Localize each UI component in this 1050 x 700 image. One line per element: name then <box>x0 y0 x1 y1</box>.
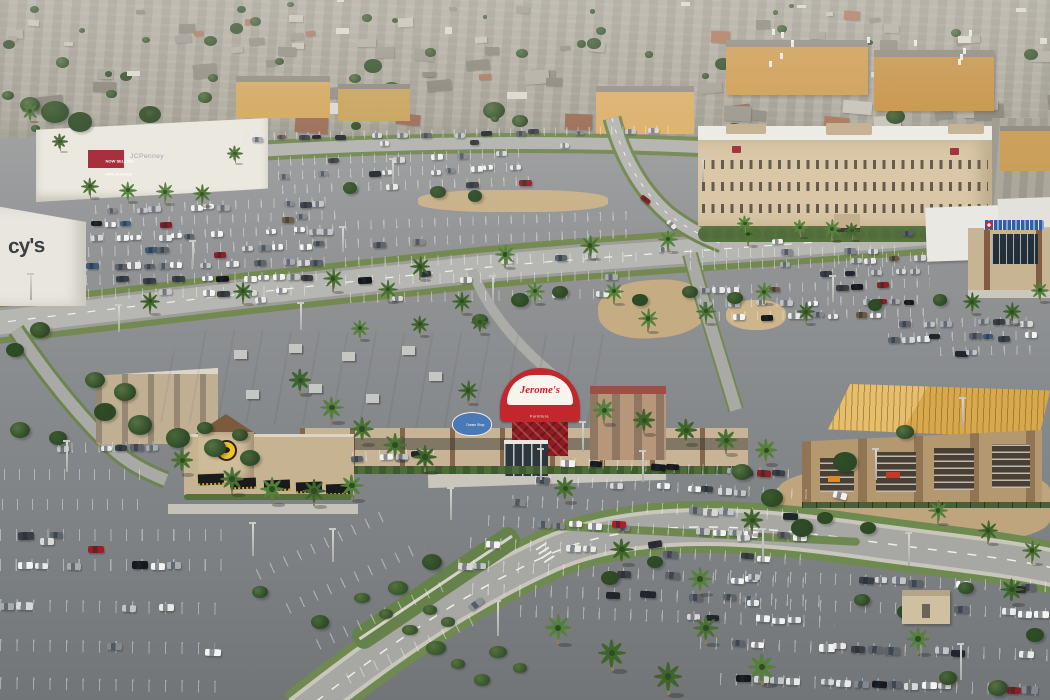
car <box>747 600 759 606</box>
car <box>386 183 398 189</box>
car <box>287 274 300 281</box>
car <box>836 285 849 291</box>
tree <box>817 512 833 525</box>
tree <box>49 431 67 445</box>
car <box>137 207 148 213</box>
car <box>473 563 486 569</box>
car <box>665 572 680 580</box>
palm-tree <box>630 412 658 438</box>
palm-shadow <box>388 301 399 304</box>
palm-shadow <box>332 421 345 425</box>
car <box>258 245 271 252</box>
car <box>940 321 952 327</box>
tree <box>311 615 329 629</box>
palm-shadow <box>1040 301 1050 304</box>
car <box>788 617 801 623</box>
palm-shadow <box>90 197 100 200</box>
palm-shadow <box>762 683 777 687</box>
car <box>899 321 911 327</box>
car <box>889 299 900 305</box>
palm-crown <box>602 408 607 413</box>
car <box>908 580 923 587</box>
palm-shadow <box>1012 323 1022 326</box>
palm-tree <box>337 477 366 504</box>
car <box>783 512 798 520</box>
car <box>120 220 131 226</box>
car <box>380 141 390 146</box>
scene-objects-layer <box>0 0 1050 700</box>
car <box>606 591 620 598</box>
car <box>301 275 313 281</box>
light-pole <box>252 523 254 556</box>
palm-shadow <box>604 423 616 427</box>
car <box>276 288 287 294</box>
car <box>914 255 926 261</box>
car <box>460 277 472 283</box>
light-pole <box>832 276 834 302</box>
car <box>951 650 966 657</box>
palm-shadow <box>918 653 931 657</box>
light-pole-head <box>249 522 256 524</box>
car <box>833 643 846 650</box>
light-pole-head <box>297 302 304 304</box>
car <box>516 131 526 136</box>
car <box>1022 685 1039 694</box>
light-pole <box>875 449 877 480</box>
car <box>88 546 104 553</box>
car <box>284 201 294 206</box>
car <box>117 235 129 241</box>
car <box>300 202 312 208</box>
chimney <box>960 55 963 60</box>
car <box>300 244 312 250</box>
car <box>703 509 718 517</box>
palm-tree <box>693 304 718 327</box>
car <box>1018 611 1032 619</box>
light-pole <box>450 488 452 520</box>
palm-crown <box>311 488 317 494</box>
palm-tree <box>650 666 686 700</box>
light-pole-head <box>27 273 34 275</box>
car <box>40 538 54 545</box>
tree <box>94 403 116 421</box>
car <box>733 313 745 319</box>
shed-door <box>922 604 930 618</box>
car <box>216 290 229 296</box>
car <box>701 486 713 492</box>
palm-crown <box>555 625 561 631</box>
car <box>1018 650 1033 658</box>
car <box>935 647 949 654</box>
palm-crown <box>180 458 185 463</box>
car <box>734 489 746 495</box>
light-pole-head <box>63 440 70 442</box>
aerial-photo: NOW SELLING APPLIANCES! JCPenney cy's <box>0 0 1050 700</box>
palm-tree <box>455 383 482 408</box>
car <box>296 214 307 219</box>
light-pole <box>66 442 68 472</box>
tree <box>240 450 260 466</box>
palm-shadow <box>272 503 285 507</box>
car <box>145 445 157 451</box>
car <box>372 133 382 138</box>
palm-tree <box>317 399 346 426</box>
car <box>369 171 381 177</box>
chimney <box>772 30 775 35</box>
car <box>756 614 770 622</box>
tree <box>85 372 105 388</box>
palm-shadow <box>700 593 713 597</box>
car <box>851 284 863 290</box>
car <box>486 541 500 548</box>
palm-tree <box>794 305 818 327</box>
palm-tree <box>1019 543 1046 568</box>
palm-tree <box>745 657 780 690</box>
light-pole <box>582 422 584 452</box>
light-pole-head <box>339 226 346 228</box>
palm-crown <box>798 226 802 230</box>
palm-tree <box>655 232 680 255</box>
palm-tree <box>79 180 101 201</box>
light-pole-head <box>759 528 766 530</box>
palm-crown <box>269 486 275 492</box>
palm-shadow <box>468 403 479 406</box>
car <box>718 507 733 515</box>
car <box>712 287 725 293</box>
palm-shadow <box>420 279 431 282</box>
tree <box>68 112 92 131</box>
car <box>170 262 182 268</box>
palm-tree <box>635 311 662 336</box>
tree <box>252 586 268 599</box>
tree <box>958 582 974 595</box>
palm-tree <box>349 322 371 343</box>
car <box>537 521 551 528</box>
palm-shadow <box>60 151 68 153</box>
car <box>431 169 441 174</box>
car <box>772 618 785 625</box>
palm-shadow <box>745 233 753 235</box>
light-pole-head <box>829 275 836 277</box>
tree <box>10 422 30 438</box>
palm-crown <box>743 222 747 226</box>
palm-tree <box>1029 284 1050 305</box>
light-pole <box>642 451 644 482</box>
palm-crown <box>58 140 62 144</box>
light-pole-head <box>494 600 501 602</box>
bush <box>513 663 527 673</box>
car <box>203 290 215 296</box>
car <box>757 470 771 478</box>
chimney <box>969 31 972 36</box>
palm-tree <box>117 184 139 205</box>
parking-stall-row <box>0 559 225 571</box>
palm-shadow <box>1032 563 1043 566</box>
car <box>640 590 656 598</box>
car <box>868 646 883 654</box>
car <box>167 562 181 569</box>
palm-tree <box>577 238 604 263</box>
car <box>283 259 295 265</box>
car <box>458 563 473 571</box>
car <box>713 530 727 537</box>
light-pole-head <box>872 448 879 450</box>
chimney <box>914 41 917 46</box>
car <box>555 255 567 261</box>
chimney <box>780 54 783 59</box>
palm-tree <box>690 619 722 649</box>
palm-shadow <box>150 313 161 316</box>
car <box>828 314 838 319</box>
car <box>115 445 127 451</box>
car <box>610 483 623 490</box>
car <box>870 313 881 318</box>
light-pole <box>300 303 302 330</box>
palm-tree <box>50 136 70 154</box>
car <box>699 288 710 294</box>
palm-tree <box>190 187 214 209</box>
palm-shadow <box>748 245 758 248</box>
car <box>871 270 882 276</box>
palm-crown <box>422 454 428 460</box>
car <box>969 333 982 339</box>
car <box>201 276 212 282</box>
car <box>130 235 141 241</box>
car <box>373 242 386 249</box>
palm-crown <box>1010 310 1014 314</box>
palm-crown <box>200 192 204 196</box>
palm-shadow <box>333 291 344 294</box>
car <box>431 154 443 160</box>
car <box>780 300 793 306</box>
palm-tree <box>469 316 491 337</box>
car <box>983 334 993 339</box>
parking-stall-row <box>0 599 220 615</box>
car <box>519 180 532 186</box>
car <box>143 277 156 284</box>
light-pole-head <box>957 643 964 645</box>
light-pole <box>332 529 334 562</box>
palm-tree <box>960 295 984 317</box>
tree <box>833 452 857 471</box>
car <box>836 680 852 688</box>
car <box>200 263 211 268</box>
parking-stall-row <box>4 469 154 480</box>
parking-stall-row <box>345 211 635 230</box>
light-pole-head <box>579 421 586 423</box>
light-pole <box>702 159 704 182</box>
tree <box>6 343 24 357</box>
palm-crown <box>750 518 755 523</box>
car <box>254 260 267 267</box>
palm-tree <box>685 570 716 599</box>
car <box>748 573 761 580</box>
car <box>217 205 230 212</box>
tree <box>868 299 882 310</box>
car <box>761 315 774 321</box>
car <box>780 262 790 267</box>
car <box>91 220 102 225</box>
tree <box>860 522 876 535</box>
car <box>696 528 711 536</box>
palm-tree <box>551 480 579 506</box>
palm-tree <box>601 284 626 307</box>
car <box>242 246 253 252</box>
palm-shadow <box>1012 603 1025 607</box>
tree <box>30 322 50 338</box>
palm-shadow <box>686 443 698 447</box>
palm-shadow <box>300 393 312 397</box>
car <box>1002 608 1017 616</box>
car <box>35 563 48 569</box>
car <box>772 239 783 245</box>
palm-crown <box>233 152 237 156</box>
palm-shadow <box>182 473 194 477</box>
car <box>421 133 432 138</box>
light-pole-head <box>905 532 912 534</box>
car <box>648 128 659 133</box>
car <box>666 219 677 230</box>
car <box>689 506 703 514</box>
palm-tree <box>449 294 474 317</box>
light-pole-head <box>329 528 336 530</box>
car <box>560 143 570 148</box>
bush <box>441 617 454 626</box>
palm-tree <box>790 222 810 240</box>
car <box>625 128 636 134</box>
palm-tree <box>168 452 196 478</box>
car <box>358 277 372 284</box>
tree <box>896 425 914 439</box>
car <box>282 217 294 223</box>
car <box>18 532 34 540</box>
bush <box>423 605 437 615</box>
car <box>657 483 671 490</box>
palm-tree <box>230 284 255 307</box>
tree <box>430 186 446 199</box>
car <box>312 201 324 207</box>
palm-tree <box>735 218 755 236</box>
tree <box>204 439 226 457</box>
car <box>875 577 888 583</box>
car <box>818 644 834 652</box>
light-pole <box>497 601 499 636</box>
car <box>612 521 627 529</box>
tree <box>939 671 957 685</box>
car <box>18 562 33 570</box>
car <box>590 460 603 467</box>
palm-shadow <box>565 501 577 505</box>
parking-stall-row <box>2 499 150 510</box>
palm-tree <box>20 105 41 125</box>
palm-tree <box>590 402 618 428</box>
car <box>105 222 116 227</box>
car <box>896 269 906 274</box>
palm-shadow <box>360 339 370 342</box>
palm-shadow <box>766 463 778 467</box>
car <box>588 523 602 530</box>
palm-shadow <box>243 303 254 306</box>
bush <box>402 625 417 636</box>
palm-crown <box>684 428 689 433</box>
light-pole-head <box>489 275 496 277</box>
car <box>781 249 793 255</box>
palm-crown <box>359 426 365 432</box>
palm-shadow <box>30 121 39 124</box>
light-pole <box>30 274 32 300</box>
palm-crown <box>724 438 729 443</box>
car <box>718 488 732 495</box>
car <box>666 464 679 471</box>
palm-tree <box>925 503 952 528</box>
tree <box>128 415 152 434</box>
car <box>101 446 112 452</box>
tree <box>232 429 248 442</box>
palm-crown <box>830 227 834 231</box>
palm-shadow <box>706 643 720 647</box>
light-pole <box>392 159 394 182</box>
light-pole <box>192 241 194 266</box>
car <box>832 490 847 500</box>
palm-tree <box>712 432 740 458</box>
tree <box>632 294 648 307</box>
palm-tree <box>347 420 378 449</box>
palm-tree <box>409 318 431 339</box>
parking-stall-row <box>0 529 230 541</box>
bush <box>388 581 407 594</box>
bush <box>451 659 464 668</box>
palm-shadow <box>614 303 625 306</box>
light-pole <box>962 398 964 427</box>
car <box>750 641 763 648</box>
palm-shadow <box>590 258 601 261</box>
car <box>1025 332 1037 338</box>
car <box>496 151 507 156</box>
car <box>157 247 169 253</box>
palm-shadow <box>764 303 774 306</box>
car <box>252 137 263 142</box>
car <box>272 244 284 250</box>
chimney <box>769 62 772 67</box>
tree <box>166 428 190 447</box>
tree <box>41 101 69 123</box>
light-pole-head <box>959 397 966 399</box>
palm-shadow <box>988 543 999 546</box>
car <box>351 456 363 463</box>
palm-tree <box>997 581 1026 608</box>
palm-shadow <box>362 443 375 447</box>
light-pole-head <box>389 158 396 160</box>
car <box>211 230 223 236</box>
parking-stall-row <box>282 176 532 194</box>
palm-tree <box>286 372 314 398</box>
car <box>889 256 899 261</box>
palm-crown <box>850 229 854 233</box>
car <box>844 271 854 276</box>
palm-shadow <box>314 505 327 509</box>
car <box>455 132 465 137</box>
car <box>320 229 333 235</box>
car <box>172 276 185 282</box>
tree <box>601 571 619 585</box>
palm-tree <box>595 643 630 676</box>
chimney <box>958 60 961 65</box>
car <box>214 252 226 258</box>
palm-crown <box>764 448 769 453</box>
car <box>922 682 937 690</box>
light-pole-head <box>189 240 196 242</box>
tree <box>114 383 136 401</box>
